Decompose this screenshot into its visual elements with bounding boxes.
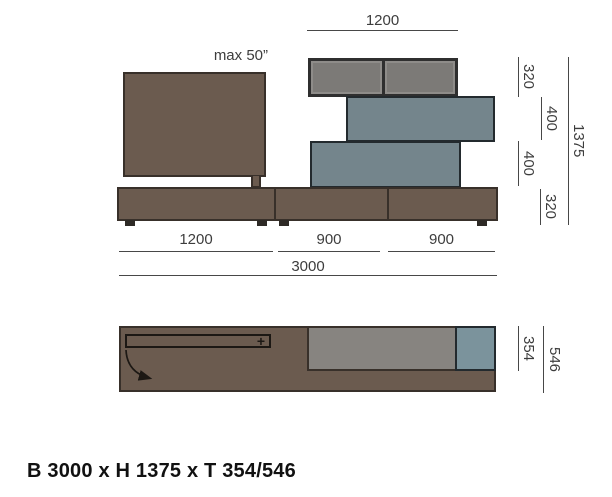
door-swing-arrow-icon [120,346,166,384]
tv-max-size-label: max 50” [160,48,268,63]
dim-seg-400-lower-label: 400 [521,141,535,186]
dim-depth-354-label: 354 [521,326,535,371]
dim-total-width-line [119,275,497,276]
shelf-compartment-left [311,61,382,94]
dim-total-width-label: 3000 [119,259,497,274]
dim-seg-1200-line [119,251,273,252]
dim-depth-546-label: 546 [546,326,561,393]
cabinet-foot [125,220,135,226]
base-divider-2 [387,189,389,219]
plus-icon: + [257,333,265,349]
dim-seg-320-top-label: 320 [521,57,535,97]
dimensions-caption: B 3000 x H 1375 x T 354/546 [27,460,296,483]
shelf-compartment-right [385,61,456,94]
dim-seg-320-bottom-label: 320 [543,189,557,225]
wall-shelf-unit [308,58,458,97]
cabinet-foot [477,220,487,226]
dim-seg-400-upper-label: 400 [544,97,558,140]
tv-panel [123,72,266,177]
plan-view: + 354 546 [0,290,612,420]
dim-top-width-line [307,30,458,31]
cabinet-foot [279,220,289,226]
dim-depth-354-line [518,326,519,371]
dim-depth-546-line [543,326,544,393]
dim-seg-900a-label: 900 [278,232,380,247]
dim-seg-900b-line [388,251,495,252]
dim-total-height-line [568,57,569,225]
dim-seg-320-top-line [518,57,519,97]
dim-top-width-label: 1200 [307,13,458,28]
plan-shelf-top-teal [455,326,496,371]
dim-seg-1200-label: 1200 [119,232,273,247]
dim-seg-320-bottom-line [540,189,541,225]
dim-seg-900b-label: 900 [388,232,495,247]
lower-shelf [310,141,461,188]
cabinet-foot [257,220,267,226]
dim-seg-400-upper-line [541,97,542,140]
dim-total-height-label: 1375 [571,57,585,225]
technical-drawing: 1200 max 50” 320 400 40 [0,0,612,497]
upper-shelf [346,96,495,142]
plan-shelf-top-gray [307,326,457,371]
dim-seg-900a-line [278,251,380,252]
front-view: 1200 max 50” 320 400 40 [0,0,612,290]
dim-seg-400-lower-line [518,141,519,186]
base-divider-1 [274,189,276,219]
base-cabinet [117,187,498,221]
